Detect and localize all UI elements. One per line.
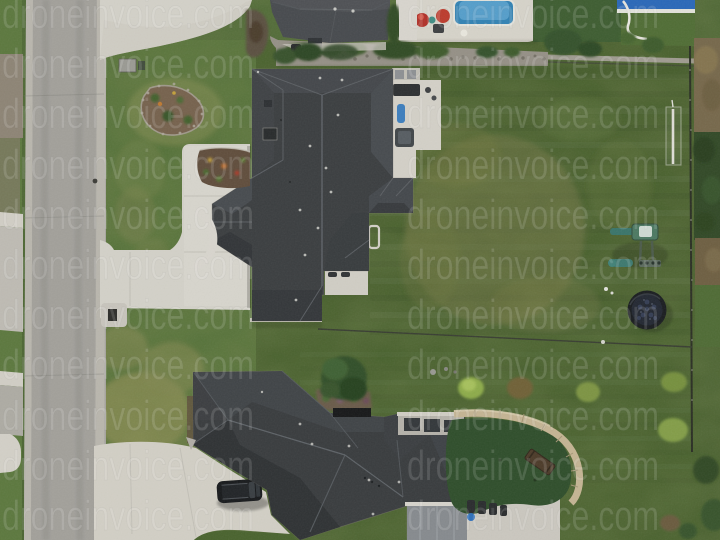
svg-text:droneinvoice.com: droneinvoice.com xyxy=(2,341,254,388)
svg-text:droneinvoice.com: droneinvoice.com xyxy=(407,241,659,288)
svg-text:droneinvoice.com: droneinvoice.com xyxy=(2,442,254,489)
svg-text:droneinvoice.com: droneinvoice.com xyxy=(407,392,659,439)
svg-text:droneinvoice.com: droneinvoice.com xyxy=(407,291,659,338)
svg-text:droneinvoice.com: droneinvoice.com xyxy=(2,90,254,137)
svg-text:droneinvoice.com: droneinvoice.com xyxy=(407,141,659,188)
svg-text:droneinvoice.com: droneinvoice.com xyxy=(2,241,254,288)
svg-text:droneinvoice.com: droneinvoice.com xyxy=(407,40,659,87)
svg-text:droneinvoice.com: droneinvoice.com xyxy=(2,40,254,87)
svg-text:droneinvoice.com: droneinvoice.com xyxy=(407,90,659,137)
svg-text:droneinvoice.com: droneinvoice.com xyxy=(2,0,254,37)
svg-text:droneinvoice.com: droneinvoice.com xyxy=(2,291,254,338)
svg-text:droneinvoice.com: droneinvoice.com xyxy=(2,191,254,238)
svg-text:droneinvoice.com: droneinvoice.com xyxy=(2,492,254,539)
svg-text:droneinvoice.com: droneinvoice.com xyxy=(407,341,659,388)
svg-text:droneinvoice.com: droneinvoice.com xyxy=(2,392,254,439)
svg-text:droneinvoice.com: droneinvoice.com xyxy=(407,0,659,37)
svg-text:droneinvoice.com: droneinvoice.com xyxy=(407,442,659,489)
svg-text:droneinvoice.com: droneinvoice.com xyxy=(407,191,659,238)
svg-text:droneinvoice.com: droneinvoice.com xyxy=(2,141,254,188)
svg-text:droneinvoice.com: droneinvoice.com xyxy=(407,492,659,539)
